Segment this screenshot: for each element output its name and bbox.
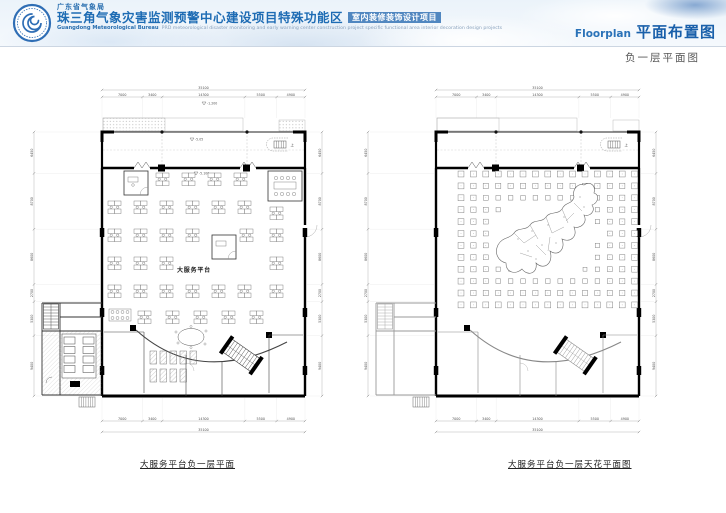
dim-label: 14300 (198, 93, 209, 97)
toilet-stall (64, 347, 75, 354)
dim-label: 35100 (532, 86, 543, 90)
toilet-stall (83, 337, 94, 344)
header-band: 广东省气象局 珠三角气象灾害监测预警中心建设项目特殊功能区室内装修装饰设计项目 … (0, 0, 726, 47)
stair-up-label: 上 (291, 143, 295, 148)
bureau-logo (12, 3, 52, 43)
level-marker-label: -5.05 (195, 137, 203, 141)
dim-label: 5500 (257, 93, 265, 97)
section-title-en: Floorplan (575, 28, 631, 40)
office-room (124, 171, 148, 195)
wall-column (303, 366, 308, 375)
dim-label: 3400 (148, 93, 156, 97)
storage-rack (170, 369, 177, 382)
curved-wall (470, 330, 621, 362)
floor-plan-drawing: 7000340014300550049003510070003400143005… (26, 85, 336, 437)
meeting-room (268, 171, 302, 201)
toilet-stall (64, 366, 75, 373)
dim-label: 5500 (591, 417, 599, 421)
dim-label: 8600 (364, 253, 368, 261)
project-title-cn: 珠三角气象灾害监测预警中心建设项目特殊功能区室内装修装饰设计项目 (57, 11, 502, 25)
dim-label: 6450 (652, 148, 656, 156)
paving-strip (613, 120, 639, 131)
wall-column (434, 366, 439, 375)
project-desc-en: PRD meteorological disaster monitoring a… (162, 26, 502, 31)
lobby-stair-treads (608, 141, 620, 148)
storage-rack (160, 351, 167, 364)
paving-strip (103, 118, 165, 131)
dim-label: 7000 (452, 417, 460, 421)
ceiling-plan-drawing: 7000340014300550049003510070003400143005… (360, 85, 670, 437)
dim-label: 2700 (318, 289, 322, 297)
storage-rack (190, 351, 197, 364)
dim-label: 8700 (364, 197, 368, 205)
wall-column (100, 308, 105, 317)
storage-rack (150, 369, 157, 382)
project-title-text: 珠三角气象灾害监测预警中心建设项目特殊功能区 (57, 10, 343, 25)
storage-rack (150, 351, 157, 364)
dim-label: 5500 (257, 417, 265, 421)
dim-label: 9400 (30, 362, 34, 370)
level-marker-icon (190, 138, 194, 141)
dim-label: 8700 (30, 197, 34, 205)
project-title-en: Guangdong Meteorological BureauPRD meteo… (57, 26, 502, 32)
dim-label: 5300 (318, 314, 322, 322)
dim-label: 4900 (287, 93, 295, 97)
paving-strip (437, 118, 499, 131)
header-titles: 广东省气象局 珠三角气象灾害监测预警中心建设项目特殊功能区室内装修装饰设计项目 … (57, 3, 502, 32)
storage-rack (180, 369, 187, 382)
dim-label: 8700 (318, 197, 322, 205)
section-title-cn: 平面布置图 (636, 23, 716, 41)
dim-label: 14300 (532, 93, 543, 97)
dim-label: 4900 (287, 417, 295, 421)
toilet-stall (83, 356, 94, 363)
dim-label: 2700 (364, 289, 368, 297)
bureau-name-en: Guangdong Meteorological Bureau (57, 25, 159, 31)
dim-label: 5500 (591, 93, 599, 97)
dim-label: 9400 (318, 362, 322, 370)
dim-label: 8700 (652, 197, 656, 205)
double-door (468, 162, 484, 168)
wall-column (100, 228, 105, 237)
office-room (212, 235, 236, 259)
storage-rack (180, 351, 187, 364)
toilet-stall (83, 366, 94, 373)
meteorological-logo-icon (12, 3, 52, 43)
dim-label: 4900 (621, 93, 629, 97)
meeting-table (109, 309, 131, 321)
stair-up-label: 上 (625, 143, 629, 148)
dim-label: 7000 (452, 93, 460, 97)
dim-label: 35100 (198, 86, 209, 90)
sheet-section-title: Floorplan平面布置图 (575, 21, 716, 42)
ceiling-plan-figure: 7000340014300550049003510070003400143005… (360, 85, 670, 485)
dim-label: 6450 (30, 148, 34, 156)
dim-label: 8600 (652, 253, 656, 261)
toilet-stall (64, 356, 75, 363)
dim-label: 4900 (621, 417, 629, 421)
paving-strip (279, 120, 305, 131)
level-marker-label: -5.100 (199, 171, 209, 175)
toilet-stall (64, 337, 75, 344)
page-subtitle: 负一层平面图 (625, 50, 700, 65)
exterior-stair (413, 397, 429, 407)
project-tag: 室内装修装饰设计项目 (348, 12, 441, 23)
wall-column (434, 308, 439, 317)
double-door (134, 162, 150, 168)
dim-label: 2700 (652, 289, 656, 297)
dim-label: 5300 (30, 314, 34, 322)
toilet-stall (83, 347, 94, 354)
floor-plan-caption: 大服务平台负一层平面 (140, 458, 235, 470)
reception-table (178, 329, 204, 346)
level-marker-icon (202, 102, 206, 105)
dim-label: 7000 (118, 93, 126, 97)
dim-label: 5300 (364, 314, 368, 322)
wall-column (303, 228, 308, 237)
dim-label: 6450 (318, 148, 322, 156)
annex-block (42, 303, 102, 395)
wall-column (434, 228, 439, 237)
dim-label: 3400 (148, 417, 156, 421)
curved-wall (136, 330, 287, 362)
dim-label: 35100 (532, 428, 543, 432)
diagonal-stair (219, 335, 264, 375)
annex-block (376, 303, 436, 395)
exterior-stair (79, 397, 95, 407)
dim-label: 8600 (30, 253, 34, 261)
wall-column (637, 308, 642, 317)
dim-label: 6450 (364, 148, 368, 156)
hall-label: 大服务平台 (177, 266, 211, 274)
dim-label: 8600 (318, 253, 322, 261)
storage-rack (170, 351, 177, 364)
dim-label: 3400 (482, 417, 490, 421)
diagonal-stair (553, 335, 598, 375)
dim-label: 5300 (652, 314, 656, 322)
dim-label: 3400 (482, 93, 490, 97)
dim-label: 35100 (198, 428, 209, 432)
floor-plan-figure: 7000340014300550049003510070003400143005… (26, 85, 336, 485)
workstation-clusters (108, 173, 283, 324)
dim-label: 2700 (30, 289, 34, 297)
dim-label: 9400 (364, 362, 368, 370)
dim-label: 14300 (532, 417, 543, 421)
dim-label: 14300 (198, 417, 209, 421)
wall-column (637, 366, 642, 375)
ceiling-plan-caption: 大服务平台负一层天花平面图 (508, 458, 632, 470)
wall-column (303, 308, 308, 317)
level-marker-label: -1.200 (207, 101, 217, 105)
lobby-stair-treads (274, 141, 286, 148)
storage-rack (160, 369, 167, 382)
dim-label: 9400 (652, 362, 656, 370)
dim-label: 7000 (118, 417, 126, 421)
